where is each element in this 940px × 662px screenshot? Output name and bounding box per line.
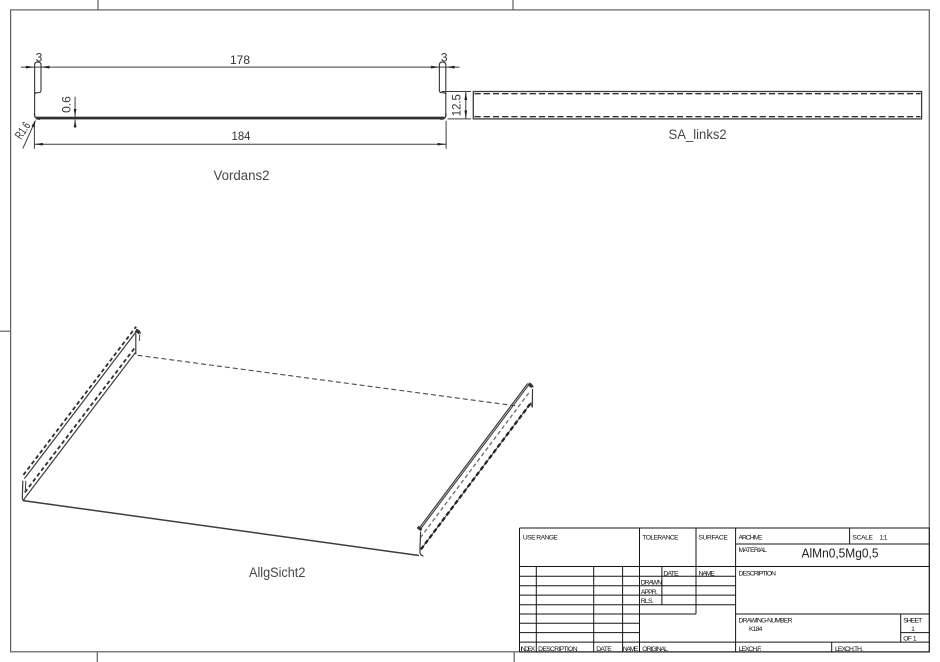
svg-text:3: 3: [36, 50, 43, 64]
svg-text:RLS.: RLS.: [641, 598, 654, 605]
svg-text:ORIGINAL: ORIGINAL: [642, 646, 668, 653]
svg-text:DESCRIPTION: DESCRIPTION: [538, 646, 578, 653]
svg-text:SURFACE: SURFACE: [699, 535, 729, 542]
svg-text:AllgSicht2: AllgSicht2: [249, 565, 305, 580]
svg-text:0.6: 0.6: [60, 96, 74, 113]
svg-text:1: 1: [911, 626, 915, 633]
svg-text:178: 178: [230, 53, 250, 67]
svg-text:AlMn0,5Mg0,5: AlMn0,5Mg0,5: [802, 547, 879, 561]
svg-text:INDEX: INDEX: [521, 646, 536, 653]
svg-text:Vordans2: Vordans2: [214, 168, 270, 183]
svg-text:DATE: DATE: [663, 570, 679, 577]
svg-text:DESCRIPTION: DESCRIPTION: [739, 570, 777, 577]
svg-text:APPR.: APPR.: [641, 589, 658, 596]
svg-text:12.5: 12.5: [450, 94, 464, 116]
svg-text:USE RANGE: USE RANGE: [523, 535, 559, 542]
svg-text:SCALE: SCALE: [852, 535, 873, 542]
svg-text:MATERIAL: MATERIAL: [739, 547, 768, 554]
svg-text:OF 1: OF 1: [903, 636, 917, 643]
svg-text:LEXCH.TH.: LEXCH.TH.: [835, 646, 863, 653]
svg-text:NAME: NAME: [699, 570, 716, 577]
svg-text:DRAWN: DRAWN: [641, 580, 663, 587]
svg-text:SHEET: SHEET: [903, 618, 922, 625]
svg-text:LEXCH.F.: LEXCH.F.: [739, 646, 762, 653]
svg-text:1:1: 1:1: [880, 535, 888, 542]
svg-text:DATE: DATE: [596, 646, 612, 653]
svg-text:3: 3: [441, 50, 448, 64]
svg-text:ARCHIVE: ARCHIVE: [739, 535, 764, 542]
svg-text:184: 184: [232, 129, 251, 143]
svg-text:K184: K184: [749, 626, 763, 633]
svg-text:NAME: NAME: [623, 646, 639, 653]
svg-text:SA_links2: SA_links2: [669, 127, 727, 142]
svg-text:DRAWING-NUMBER: DRAWING-NUMBER: [739, 618, 793, 625]
svg-text:TOLERANCE: TOLERANCE: [642, 535, 679, 542]
